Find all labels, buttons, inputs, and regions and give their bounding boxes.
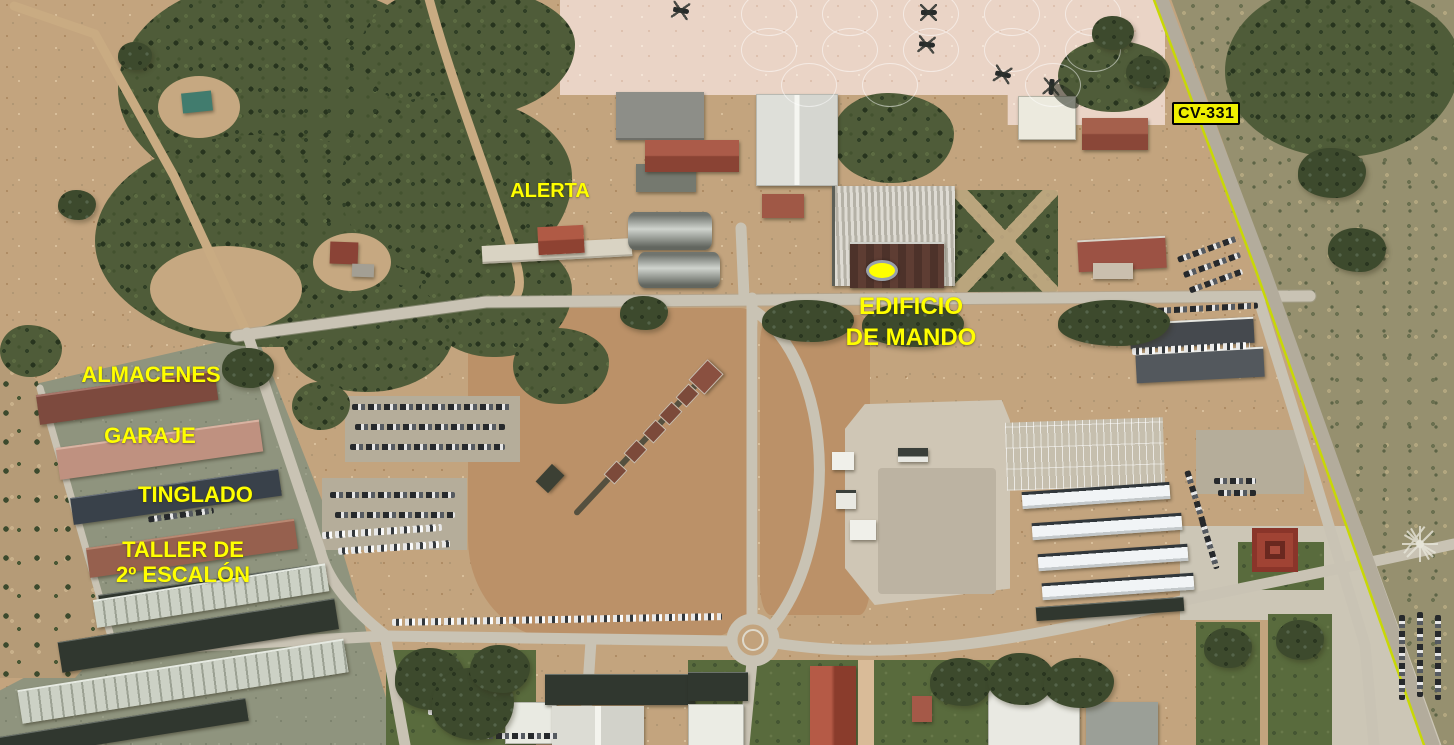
label-edificio-de-mando: EDIFICIODE MANDO bbox=[830, 291, 992, 353]
label-line: EDIFICIO bbox=[859, 293, 963, 320]
tree bbox=[1204, 628, 1252, 668]
tree bbox=[930, 658, 992, 706]
helicopter bbox=[915, 33, 939, 57]
building-red-roof-small bbox=[912, 696, 932, 722]
car-row bbox=[335, 512, 455, 518]
building-white bbox=[688, 704, 744, 745]
hangar bbox=[628, 212, 712, 250]
car-row bbox=[350, 444, 505, 450]
tree bbox=[118, 42, 152, 70]
dirt-path bbox=[14, 0, 519, 333]
label-line: 2º ESCALÓN bbox=[116, 562, 250, 587]
edificio-de-mando-marker bbox=[866, 260, 898, 281]
building-dark bbox=[688, 672, 748, 701]
car-row bbox=[1435, 615, 1441, 700]
car-row bbox=[1214, 478, 1256, 484]
label-taller-2-escalon: TALLER DE2º ESCALÓN bbox=[100, 537, 266, 587]
tree bbox=[470, 645, 530, 693]
car-row bbox=[1218, 490, 1256, 496]
tree bbox=[620, 296, 668, 330]
building-small-white bbox=[850, 520, 876, 540]
building-white-large bbox=[756, 94, 838, 186]
building-small bbox=[1093, 263, 1133, 279]
car-row bbox=[1417, 612, 1423, 697]
building-dark bbox=[545, 674, 695, 705]
building-gray bbox=[616, 92, 704, 140]
helipad-circle bbox=[822, 28, 878, 72]
tree bbox=[1044, 658, 1114, 708]
building-red-roof bbox=[645, 140, 739, 172]
helipad-circle bbox=[781, 63, 837, 107]
helicopter bbox=[990, 62, 1016, 88]
building-shed bbox=[352, 264, 374, 278]
helicopter bbox=[918, 2, 940, 24]
alerta-red-roof-building bbox=[537, 225, 584, 255]
tree bbox=[58, 190, 96, 220]
car-row bbox=[355, 424, 505, 430]
building-white-gable bbox=[552, 706, 644, 745]
label-garaje: GARAJE bbox=[95, 422, 205, 451]
tree bbox=[1276, 620, 1324, 660]
tree-row bbox=[1058, 300, 1170, 346]
building-small-white bbox=[832, 452, 854, 470]
building-small bbox=[898, 448, 928, 462]
label-almacenes: ALMACENES bbox=[68, 361, 234, 390]
tree bbox=[1092, 16, 1134, 50]
car-row bbox=[1399, 615, 1405, 700]
building-small-white bbox=[836, 490, 856, 509]
sun-emblem bbox=[1398, 522, 1442, 566]
edificio-de-mando-building bbox=[850, 242, 944, 288]
satellite-map: ALERTA EDIFICIODE MANDO ALMACENES GARAJE… bbox=[0, 0, 1454, 745]
tree bbox=[1328, 228, 1386, 272]
label-alerta: ALERTA bbox=[500, 178, 600, 204]
building-teal-roof bbox=[181, 90, 213, 113]
label-line: TALLER DE bbox=[122, 537, 244, 562]
building-red-roof bbox=[1082, 118, 1148, 150]
label-tinglado: TINGLADO bbox=[128, 481, 263, 510]
building-gray bbox=[1086, 702, 1158, 745]
building-red-roof bbox=[762, 194, 804, 218]
helipad-circle bbox=[741, 28, 797, 72]
roundabout bbox=[732, 619, 774, 661]
label-line: DE MANDO bbox=[846, 324, 977, 351]
tree bbox=[1298, 148, 1366, 198]
car-row bbox=[330, 492, 455, 498]
guardhouse-pyramid-roof bbox=[1252, 528, 1298, 572]
cv331-road-badge: CV-331 bbox=[1172, 102, 1240, 125]
helipad-circle bbox=[862, 63, 918, 107]
helicopter bbox=[668, 0, 693, 24]
building-strip bbox=[858, 660, 874, 745]
car-row bbox=[352, 404, 512, 410]
building-red-roof bbox=[330, 242, 359, 265]
building-red-roof-large bbox=[810, 666, 856, 745]
hangar bbox=[638, 252, 720, 288]
tree bbox=[1126, 56, 1166, 88]
